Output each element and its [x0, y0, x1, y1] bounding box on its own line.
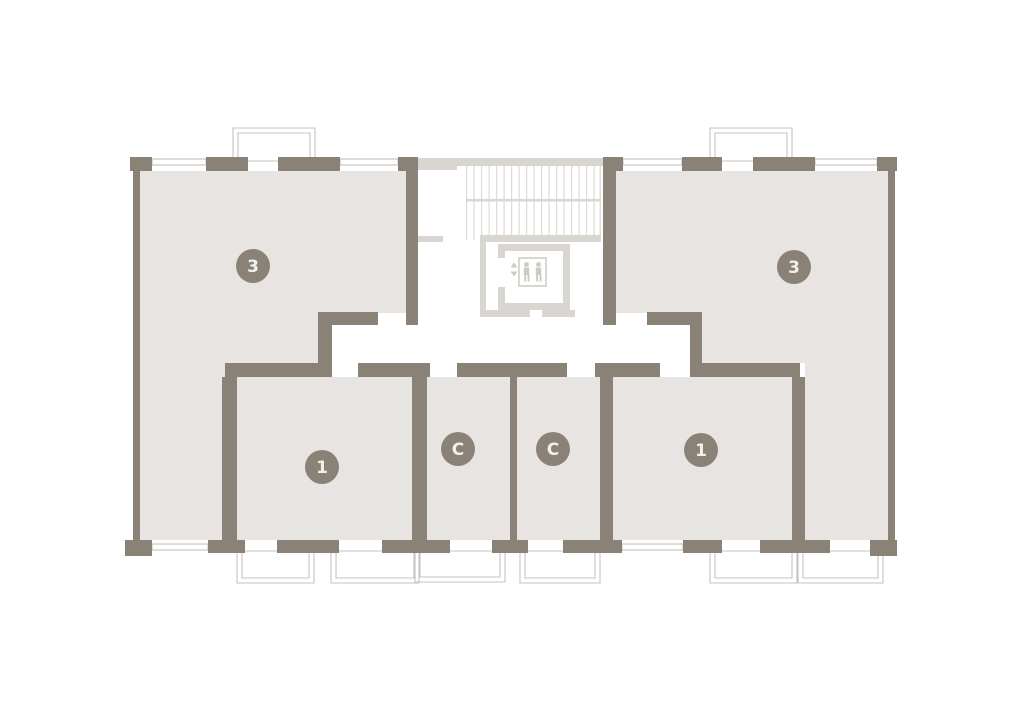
balcony-bottom-4 — [520, 551, 600, 583]
balcony-top-right — [710, 128, 792, 161]
floor-plan-page: 331CC1 — [0, 0, 1024, 712]
balcony-top-left — [233, 128, 315, 161]
unit-badge-label: C — [452, 440, 464, 460]
unit-badge-apartment-1-right: 1 — [684, 433, 718, 467]
balcony-bottom-1 — [237, 551, 314, 583]
unit-badge-studio-right: C — [536, 432, 570, 466]
unit-badge-apartment-3-right: 3 — [777, 250, 811, 284]
stair-core — [418, 158, 603, 317]
staircase-treads — [466, 166, 601, 240]
unit-badge-studio-left: C — [441, 432, 475, 466]
elevator-car — [519, 258, 546, 286]
floor-plan: 331CC1 — [0, 0, 1024, 712]
staircase-right-edge — [600, 166, 601, 240]
up-down-arrows-icon — [511, 263, 518, 277]
unit-badge-label: C — [547, 440, 559, 460]
balcony-bottom-5 — [710, 551, 797, 583]
unit-badge-apartment-1-left: 1 — [305, 450, 339, 484]
balcony-bottom-2 — [331, 551, 419, 583]
unit-badge-apartment-3-left: 3 — [236, 249, 270, 283]
staircase-landing-line — [466, 199, 601, 201]
elevator — [511, 258, 547, 286]
unit-badge-label: 1 — [316, 458, 328, 478]
unit-badge-label: 3 — [788, 258, 800, 278]
unit-badge-label: 1 — [695, 441, 707, 461]
unit-badge-label: 3 — [247, 257, 259, 277]
balcony-bottom-3 — [415, 551, 505, 582]
